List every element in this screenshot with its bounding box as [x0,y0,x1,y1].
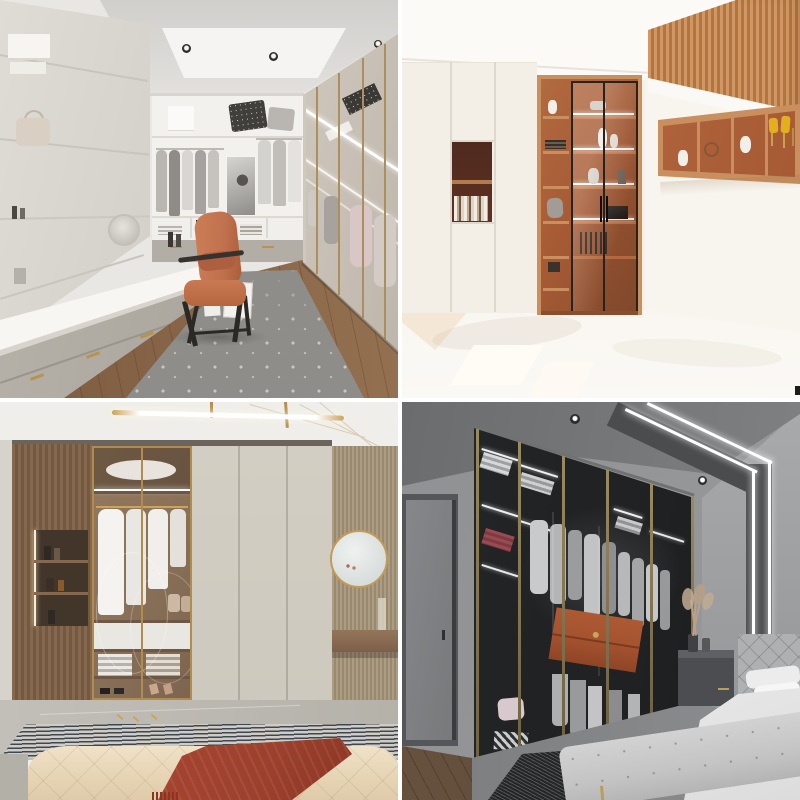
cabinet-seam [450,222,494,224]
door [406,500,452,740]
books [454,196,488,221]
round-mirror [330,530,388,588]
niche-shelf [452,180,492,184]
bottles [12,206,17,219]
hanging-shirts [288,140,301,202]
display-niche [34,530,88,626]
door-gap [452,500,456,740]
hanging-clothes [208,150,219,208]
drawer-knob [592,631,599,638]
vanity-counter [332,630,398,652]
white-gourd [740,136,751,153]
hanging-pants [552,674,568,726]
hanging-clothes [182,150,193,210]
glass-door-mullion [603,81,605,313]
led-strip [481,564,518,577]
wardrobe-mullion [362,58,364,318]
counter-bottles [168,232,173,247]
bookshelf-shelf [543,116,569,119]
bottle [378,598,386,630]
niche-led [34,530,36,626]
mirror-flowers [344,562,358,572]
vanity-mirror [108,214,140,246]
hanging-shirts [258,140,271,204]
ceiling-spotlight [269,52,278,61]
storage-boxes [10,62,46,74]
led-strip [481,504,518,517]
hanging-clothes [195,150,206,214]
chair-seat [184,280,246,306]
photo-orange-bookshelf-room[interactable] [402,0,800,398]
door-handle [606,196,608,222]
figurine-stand [771,133,773,146]
nightstand [678,652,734,706]
vase [702,638,710,652]
floor-mark [795,386,800,395]
folded-towels [240,224,262,235]
shelf-divider [731,112,734,180]
figurine-stand [783,133,785,148]
hanging-clothes [660,570,670,630]
ceiling-spotlight [698,476,707,485]
hanging-clothes [568,530,582,600]
hanging-shirts [273,140,286,206]
door-seam [286,446,288,700]
photo-bedroom-wardrobe[interactable] [0,402,398,800]
wardrobe-mullion [518,442,521,752]
plain-doors [192,446,332,700]
handbag [16,118,50,146]
dark-pot [548,262,560,272]
photo-collage [0,0,800,800]
red-folded-clothes [481,528,514,552]
brush-cup [14,268,26,284]
top-box [168,106,194,131]
bookshelf-shelf [543,186,569,189]
niche-shelf [34,592,88,595]
wall-strip [0,440,12,710]
shelf-divider [697,116,700,178]
counter-bottles [176,234,181,247]
wardrobe-mullion [562,456,565,739]
bookshelf-shelf [543,151,569,154]
hanging-clothes [632,558,644,628]
hanging-pants [570,680,586,736]
bookshelf-shelf [543,288,569,291]
pampas-plume [682,588,694,610]
white-vase [548,100,557,114]
photo-dark-bedroom-closet[interactable] [402,402,800,800]
photo-walk-in-closet[interactable] [0,0,398,398]
dark-pillow [228,100,268,133]
grey-pillow [267,107,295,132]
door-handle [600,196,602,222]
hanging-clothes [350,205,372,267]
wardrobe-mullion [476,429,479,763]
bookshelf-shelf [543,256,569,259]
wardrobe-mullion [338,73,340,295]
wardrobe-front-edge [303,95,306,263]
hanging-clothes [156,150,167,212]
linear-pendant-light [112,410,344,421]
book-stack [545,140,566,149]
bottle [58,580,64,591]
bottle [48,610,55,624]
throw-fringe [152,792,178,800]
led-strip [752,470,755,652]
bottles [20,208,25,219]
yellow-figurine [780,116,790,134]
bear-figurine [546,198,563,219]
wardrobe-mullion [316,87,318,274]
bottle [44,546,51,560]
bookshelf-plinth [541,311,638,315]
hanging-clothes [324,196,339,244]
bookshelf-shelf [543,221,569,224]
hanging-clothes [530,520,548,594]
wardrobe-mullion [650,484,653,714]
bottle [46,578,54,591]
bottle [54,548,60,560]
wardrobe-mullion [606,470,609,727]
drawer-handle [262,246,274,248]
pink-handbag [497,697,525,721]
shelf-divider [765,108,768,182]
wardrobe-mullion [384,44,386,339]
door-handle [442,630,445,640]
ring-sculpture [704,142,719,157]
niche-shelf [34,560,88,563]
wire-tree [792,128,794,146]
vase [688,634,698,652]
hanging-clothes [602,542,616,614]
yellow-figurine [769,118,779,133]
cabinet-seam [494,62,496,312]
led-strip [768,460,771,654]
storage-boxes [8,34,50,60]
ceiling-spotlight [182,44,191,53]
nightstand-handle [718,688,729,690]
white-vase [678,150,688,166]
cubby-divider [266,216,268,238]
vanity-shadow [332,652,398,658]
door-seam [238,446,240,700]
gold-mullion [141,446,143,700]
hanging-clothes [618,552,630,616]
tile-corner [0,754,28,800]
cubby-divider [190,216,192,238]
ceiling-spotlight [570,414,580,424]
portrait-art [226,156,256,216]
hanging-clothes [169,150,180,216]
